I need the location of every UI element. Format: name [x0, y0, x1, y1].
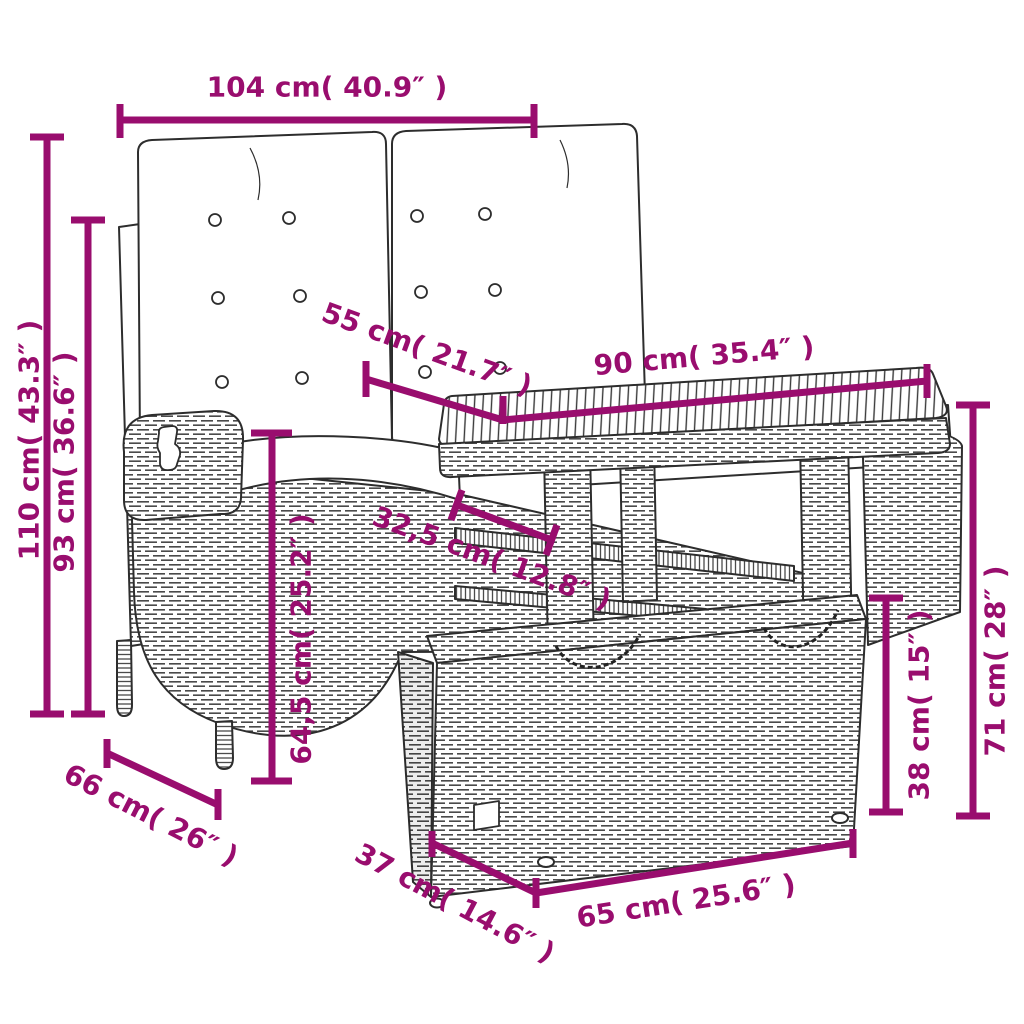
- dimension-diagram: 104 cm( 40.9″ ) 110 cm( 43.3″ ) 93 cm( 3…: [0, 0, 1024, 1024]
- dim-label-bench-height: 110 cm( 43.3″ ): [13, 320, 46, 561]
- dim-label-ottoman-height: 38 cm( 15″ ): [903, 609, 936, 800]
- dim-label-bench-width: 104 cm( 40.9″ ): [207, 71, 448, 104]
- dim-label-table-height: 71 cm( 28″ ): [979, 565, 1012, 756]
- furniture-line-art: [0, 0, 1024, 1024]
- dim-label-backrest-height: 93 cm( 36.6″ ): [48, 351, 81, 572]
- dim-label-seat-side-height: 64,5 cm( 25.2″ ): [285, 513, 318, 764]
